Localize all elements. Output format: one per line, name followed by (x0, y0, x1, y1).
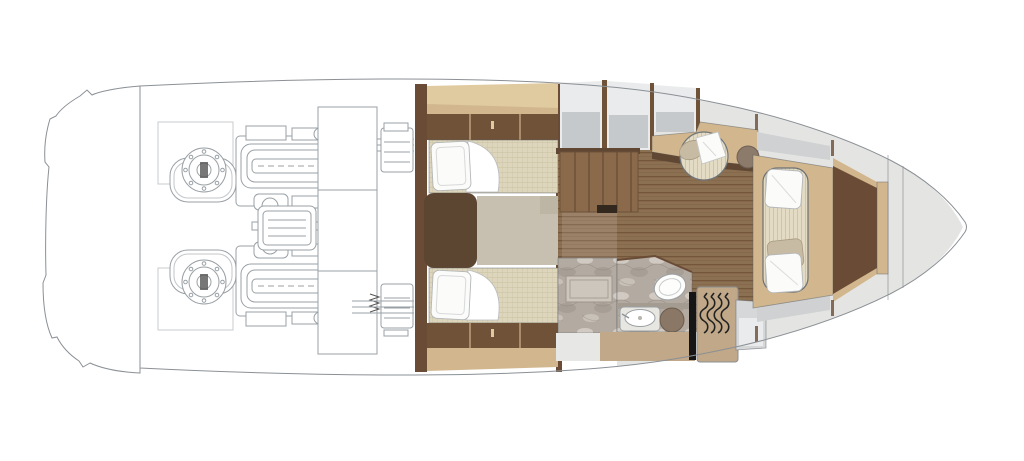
floorplan-canvas (0, 0, 1024, 461)
vanity-cabinet (600, 332, 695, 361)
wardrobe-handle (491, 121, 494, 129)
headboard (424, 193, 477, 268)
wardrobe-port (427, 112, 558, 140)
tank (252, 206, 322, 250)
filler-notch (540, 196, 558, 214)
service-column (318, 107, 377, 354)
shower (558, 258, 617, 333)
aft-deck-step (556, 333, 600, 361)
swim-platform-outline (43, 86, 140, 373)
yacht-floorplan (0, 0, 1024, 461)
stair-landing (597, 205, 617, 213)
wardrobe-starboard (427, 323, 558, 350)
staircase (560, 152, 638, 213)
sofa-pillow-top (765, 169, 804, 209)
bed-port (429, 140, 558, 193)
vanity-stool (660, 308, 684, 332)
sofa-pillow-bottom (765, 253, 804, 293)
wardrobe-handle (491, 329, 494, 337)
bed-starboard (429, 268, 558, 323)
sink (620, 307, 660, 331)
sofa (763, 168, 808, 293)
twin-cabin (424, 83, 558, 371)
corridor (562, 212, 617, 258)
bathroom-door (689, 292, 696, 360)
